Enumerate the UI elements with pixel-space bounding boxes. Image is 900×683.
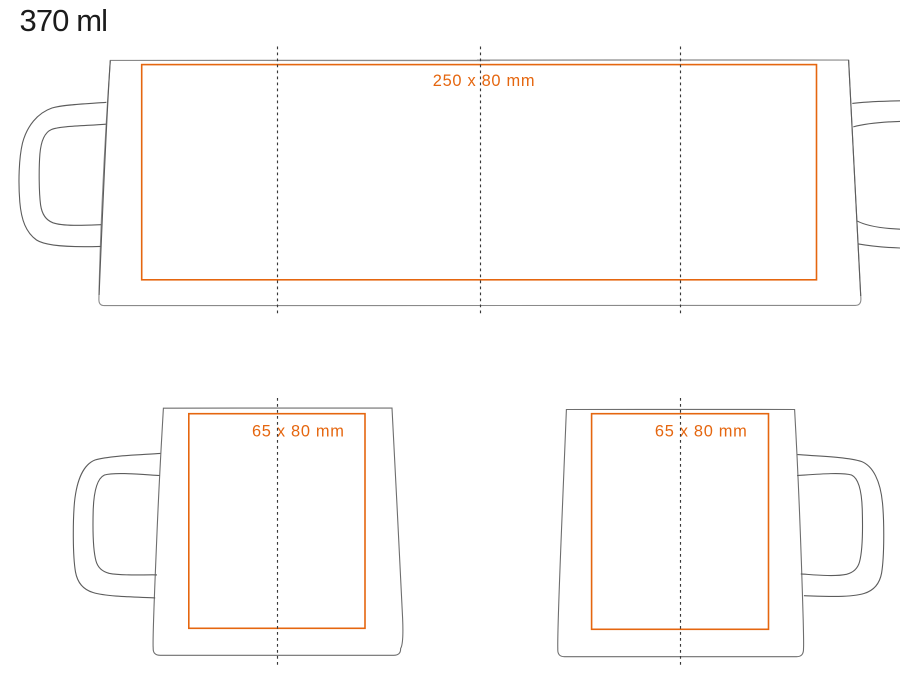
svg-text:250 x 80 mm: 250 x 80 mm — [433, 72, 535, 90]
svg-text:65 x 80 mm: 65 x 80 mm — [655, 423, 748, 441]
svg-text:370 ml: 370 ml — [20, 3, 108, 38]
svg-text:65 x 80 mm: 65 x 80 mm — [252, 423, 345, 441]
